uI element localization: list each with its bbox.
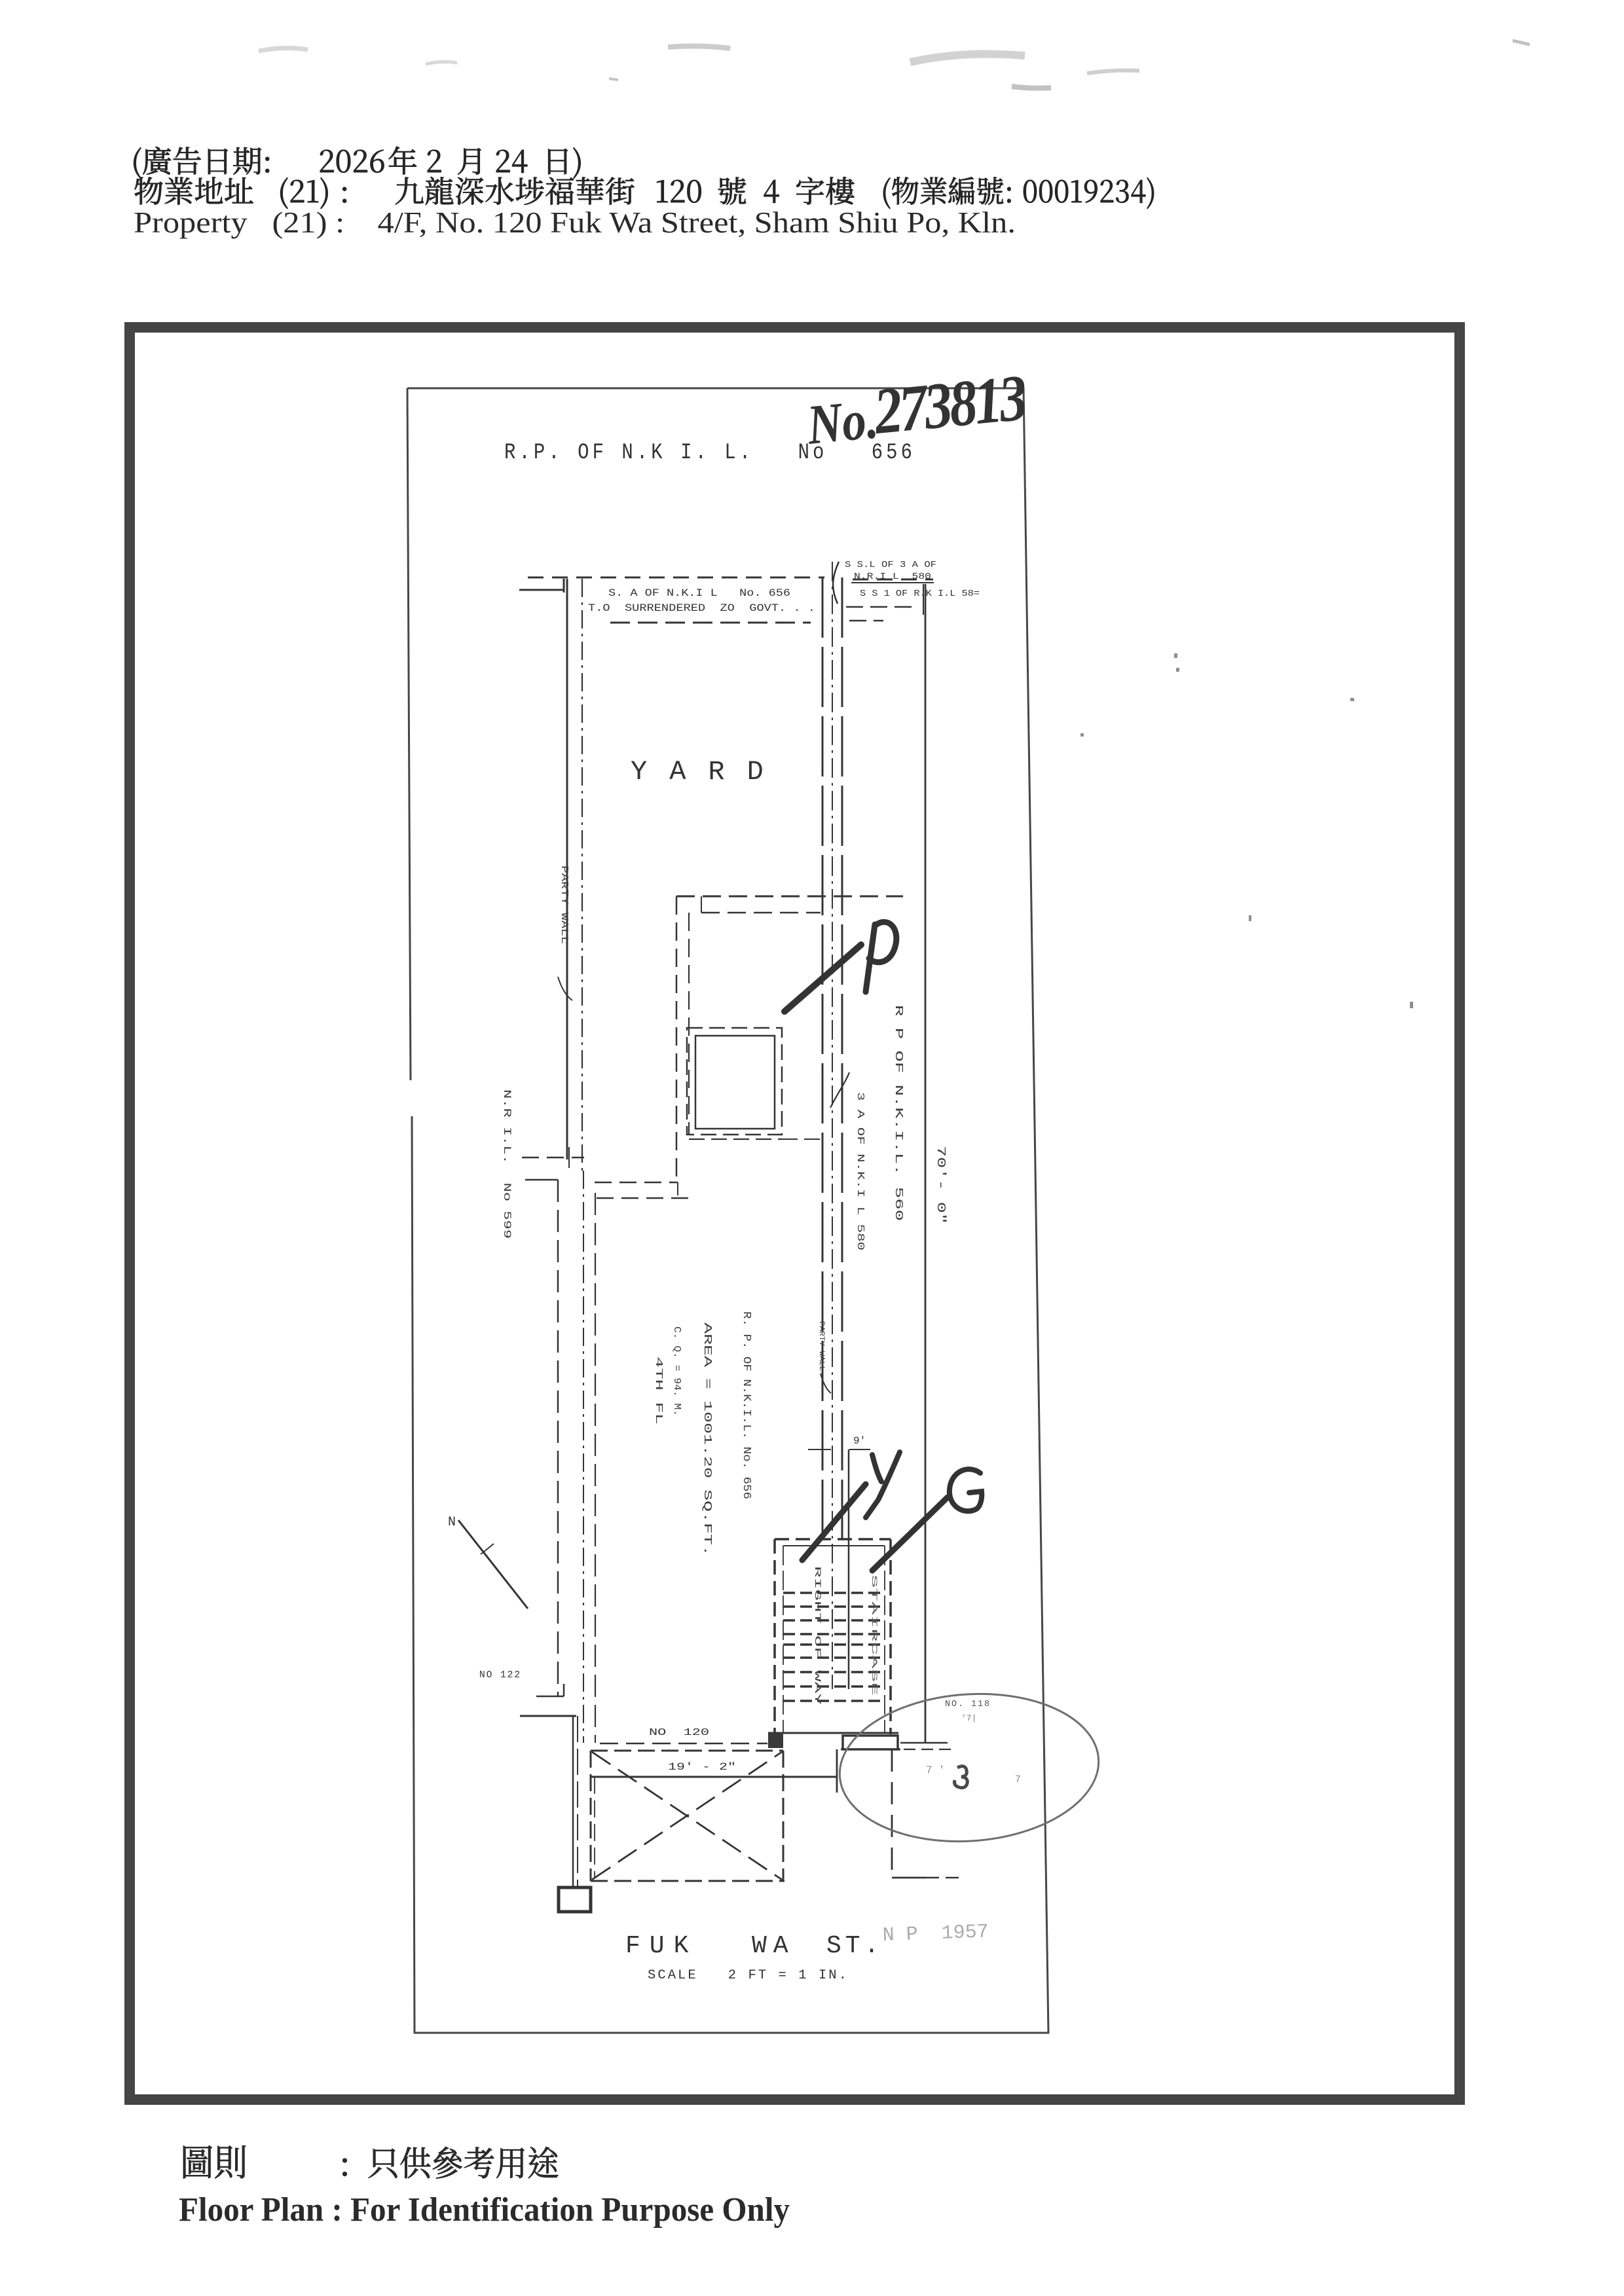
svg-text:273813: 273813 xyxy=(870,361,1029,448)
svg-text:3 A OF N.K.I L 580: 3 A OF N.K.I L 580 xyxy=(855,1092,866,1250)
svg-text:NO 120: NO 120 xyxy=(649,1727,709,1738)
svg-text:ST.: ST. xyxy=(826,1932,883,1960)
svg-text:T.O SURRENDERED ZO GOVT. .: T.O SURRENDERED ZO GOVT. . . xyxy=(588,602,815,614)
svg-text:N.R.I L 580: N.R.I L 580 xyxy=(854,572,931,582)
svg-text:R.P. OF N.K I. L. No 656: R.P. OF N.K I. L. No 656 xyxy=(504,441,915,465)
svg-text:7 ': 7 ' xyxy=(926,1764,945,1776)
svg-text:STAIRCASE: STAIRCASE xyxy=(870,1575,877,1696)
svg-text:C. Q. = 94. M.: C. Q. = 94. M. xyxy=(671,1326,682,1416)
svg-text:N: N xyxy=(448,1515,456,1530)
svg-text:FUK: FUK xyxy=(625,1932,697,1960)
svg-text:7: 7 xyxy=(1015,1774,1021,1785)
svg-text:R P OF N.K.I.L. 560: R P OF N.K.I.L. 560 xyxy=(892,1005,904,1221)
svg-text:RIGHT OF WAY: RIGHT OF WAY xyxy=(813,1566,822,1705)
svg-text:N P 1957: N P 1957 xyxy=(882,1921,989,1947)
svg-text:SCALE 2 FT = 1 IN.: SCALE 2 FT = 1 IN. xyxy=(648,1968,849,1983)
svg-text:Property (21) : 4/F, No.: Property (21) : 4/F, No. 120 Fuk Wa Stre… xyxy=(134,206,1016,239)
svg-text:NO. 118: NO. 118 xyxy=(945,1699,991,1709)
svg-text:S. A OF N.K.I L No. 656: S. A OF N.K.I L No. 656 xyxy=(608,587,790,599)
svg-text:WA: WA xyxy=(752,1932,795,1960)
svg-text:S S 1 OF R.K I.L 58=: S S 1 OF R.K I.L 58= xyxy=(860,589,980,599)
svg-text:AREA = 1001.20 SQ.FT.: AREA = 1001.20 SQ.FT. xyxy=(701,1322,713,1556)
svg-text:YARD: YARD xyxy=(631,756,786,788)
svg-text:NO 122: NO 122 xyxy=(479,1669,521,1681)
svg-text:PARTY WALL: PARTY WALL xyxy=(817,1321,825,1371)
svg-text:N.R I.L. No 599: N.R I.L. No 599 xyxy=(501,1089,513,1239)
svg-text:9': 9' xyxy=(853,1435,866,1447)
svg-text:R. P. OF N.K.I.L. No. 656: R. P. OF N.K.I.L. No. 656 xyxy=(740,1311,752,1499)
svg-text:19' - 2": 19' - 2" xyxy=(668,1761,736,1773)
svg-text:S S.L OF 3 A OF: S S.L OF 3 A OF xyxy=(845,560,936,570)
svg-text:Floor Plan : For Identificatio: Floor Plan : For Identification Purpose … xyxy=(179,2191,790,2229)
svg-text:4TH FL: 4TH FL xyxy=(653,1357,664,1425)
svg-text:PARTY WALL: PARTY WALL xyxy=(559,866,570,944)
svg-text:70'- 0": 70'- 0" xyxy=(934,1146,947,1224)
svg-text:'7|: '7| xyxy=(961,1713,976,1723)
